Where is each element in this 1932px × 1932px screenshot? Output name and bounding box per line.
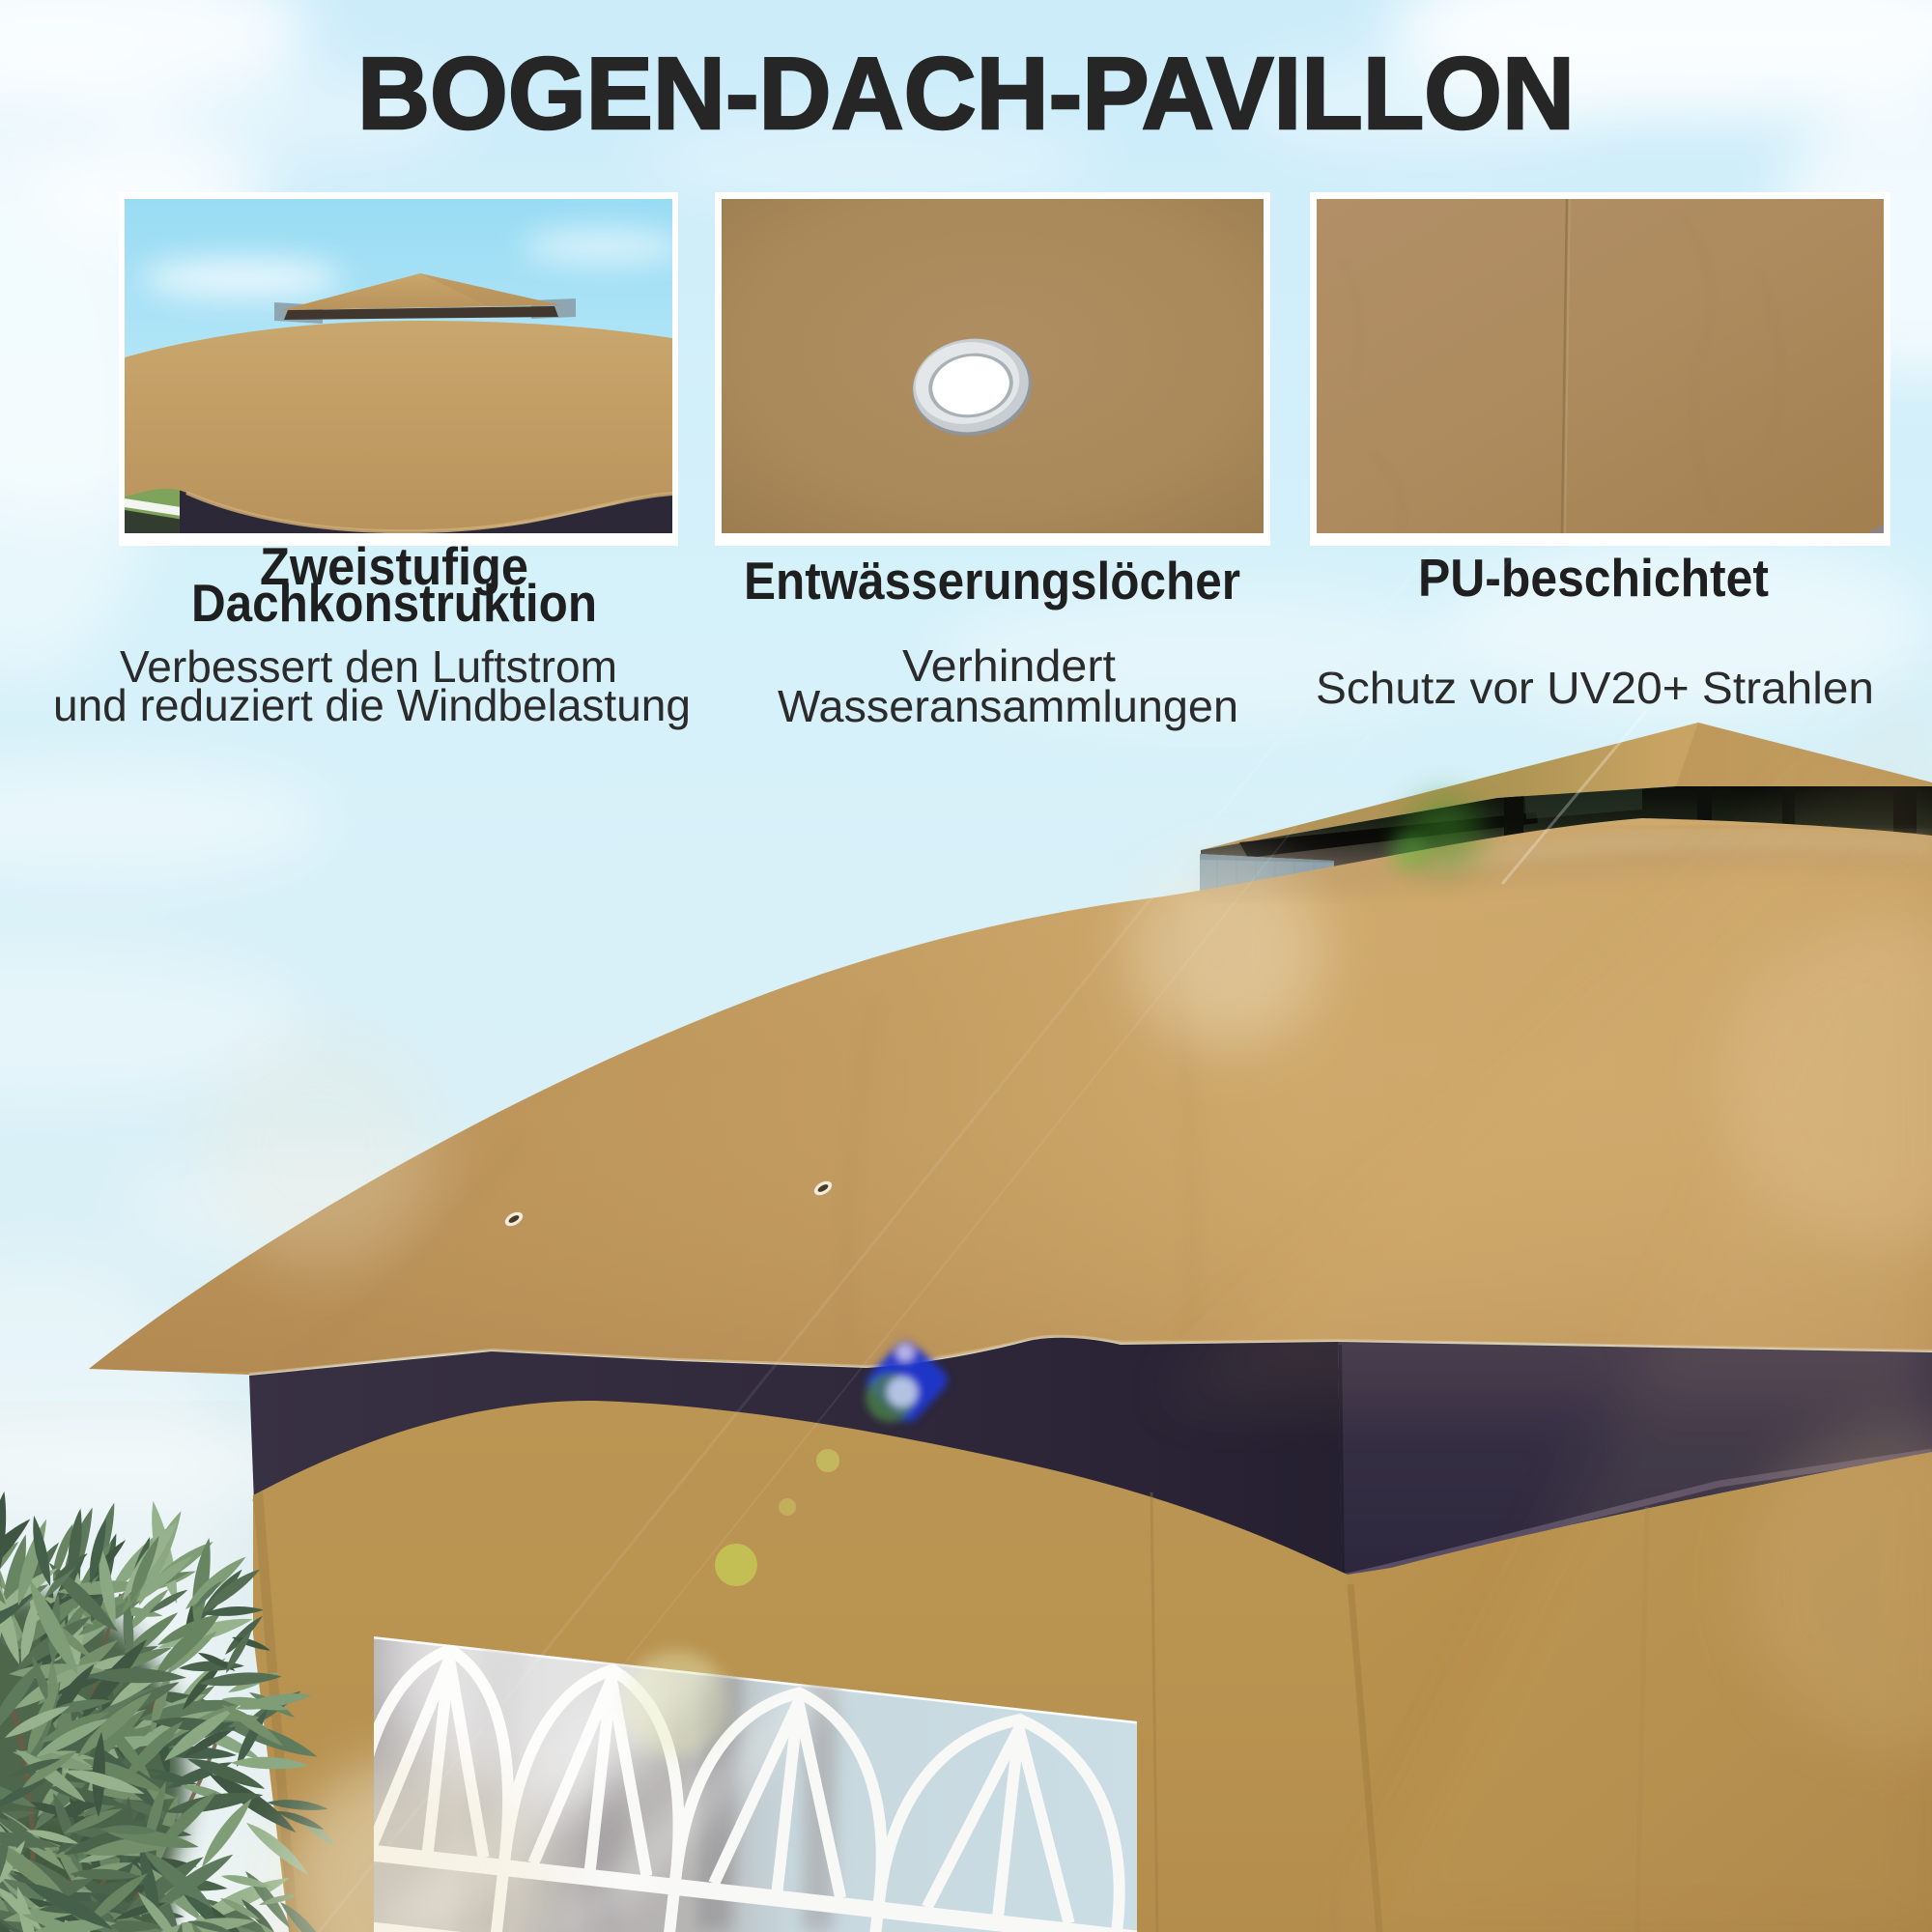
svg-text:und reduziert die Windbelastun: und reduziert die Windbelastung — [53, 680, 691, 730]
svg-text:PU-beschichtet: PU-beschichtet — [1418, 548, 1769, 608]
svg-text:BOGEN-DACH-PAVILLON: BOGEN-DACH-PAVILLON — [357, 37, 1575, 151]
svg-text:Entwässerungslöcher: Entwässerungslöcher — [744, 551, 1240, 611]
svg-text:Schutz vor UV20+ Strahlen: Schutz vor UV20+ Strahlen — [1316, 663, 1874, 713]
svg-text:Dachkonstruktion: Dachkonstruktion — [191, 573, 597, 633]
svg-text:Wasseransammlungen: Wasseransammlungen — [778, 681, 1238, 731]
